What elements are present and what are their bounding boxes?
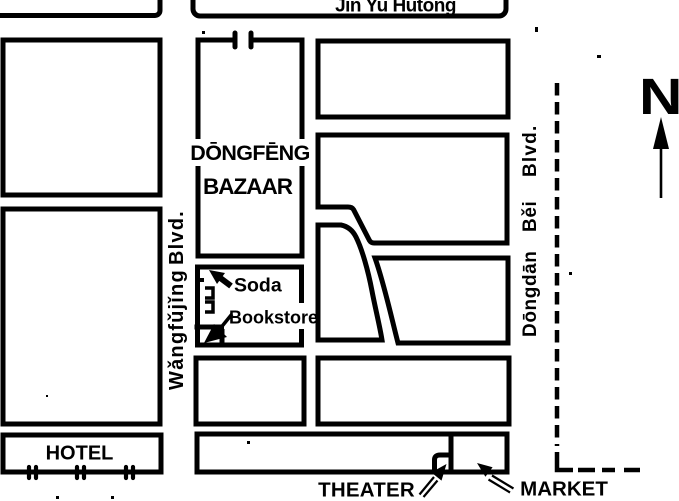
svg-text:Wǎngfǔjǐng: Wǎngfǔjǐng <box>166 269 188 390</box>
svg-text:Bookstore: Bookstore <box>229 308 318 328</box>
svg-text:THEATER: THEATER <box>318 479 415 501</box>
svg-text:Soda: Soda <box>234 275 282 297</box>
svg-text:Jin Yu Hutong: Jin Yu Hutong <box>335 0 456 17</box>
svg-text:DŌNGFĒNG: DŌNGFĒNG <box>190 141 309 165</box>
svg-text:Blvd.: Blvd. <box>166 210 188 265</box>
svg-text:Blvd.: Blvd. <box>520 125 541 177</box>
svg-text:N: N <box>639 68 679 125</box>
svg-text:BAZAAR: BAZAAR <box>203 174 293 199</box>
svg-text:HOTEL: HOTEL <box>46 443 114 465</box>
svg-text:MARKET: MARKET <box>520 478 608 501</box>
svg-text:Dōngdān: Dōngdān <box>520 250 541 337</box>
svg-text:Běi: Běi <box>520 201 541 232</box>
